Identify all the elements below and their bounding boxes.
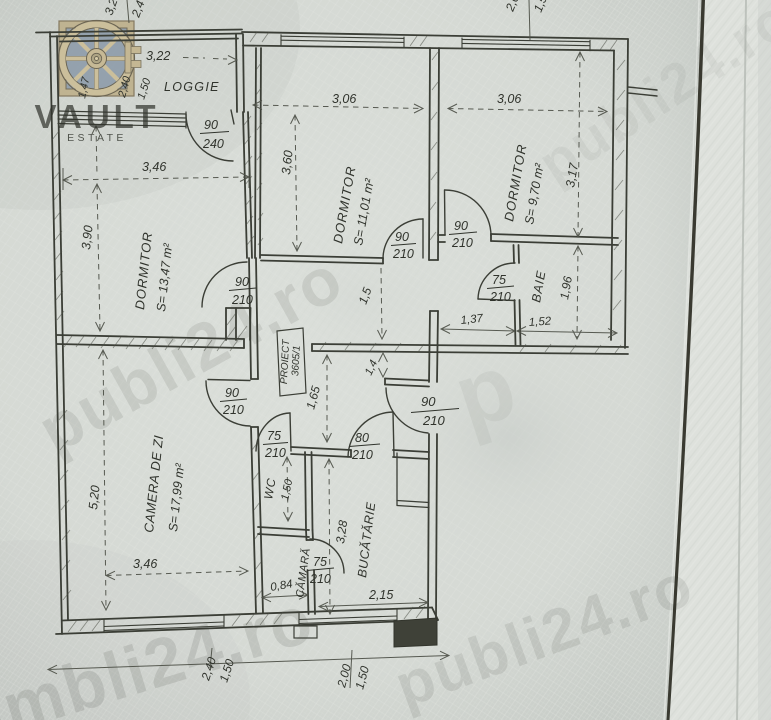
svg-text:3,06: 3,06 — [332, 92, 356, 106]
svg-text:90: 90 — [225, 386, 239, 400]
svg-text:90: 90 — [454, 219, 468, 233]
svg-text:210: 210 — [309, 572, 331, 586]
svg-text:90: 90 — [204, 118, 218, 132]
svg-text:3,46: 3,46 — [142, 160, 166, 174]
svg-text:210: 210 — [489, 290, 511, 304]
svg-text:210: 210 — [264, 446, 286, 460]
svg-text:210: 210 — [231, 293, 253, 307]
svg-text:3,46: 3,46 — [133, 557, 157, 571]
svg-text:90: 90 — [395, 230, 409, 244]
svg-text:3,22: 3,22 — [146, 49, 170, 63]
svg-text:80: 80 — [355, 431, 369, 445]
svg-text:3,60: 3,60 — [279, 150, 295, 176]
svg-text:LOGGIE: LOGGIE — [164, 80, 220, 94]
svg-text:3,90: 3,90 — [79, 225, 95, 251]
svg-text:2,15: 2,15 — [368, 588, 393, 602]
svg-text:75: 75 — [492, 273, 506, 287]
svg-text:5,20: 5,20 — [86, 485, 102, 511]
svg-text:ESTATE: ESTATE — [67, 132, 127, 144]
svg-text:75: 75 — [313, 555, 327, 569]
svg-text:VAULT: VAULT — [34, 98, 159, 135]
svg-text:240: 240 — [202, 137, 224, 151]
svg-text:210: 210 — [351, 448, 373, 462]
svg-text:3605/1: 3605/1 — [290, 345, 303, 376]
svg-text:1,37: 1,37 — [460, 313, 484, 327]
svg-text:90: 90 — [235, 275, 249, 289]
svg-text:210: 210 — [422, 413, 445, 428]
svg-text:210: 210 — [451, 236, 473, 250]
svg-text:1,52: 1,52 — [528, 315, 552, 329]
svg-text:3,06: 3,06 — [497, 92, 521, 106]
svg-text:90: 90 — [421, 394, 436, 409]
svg-text:210: 210 — [392, 247, 414, 261]
svg-text:210: 210 — [222, 403, 244, 417]
svg-text:75: 75 — [267, 429, 281, 443]
